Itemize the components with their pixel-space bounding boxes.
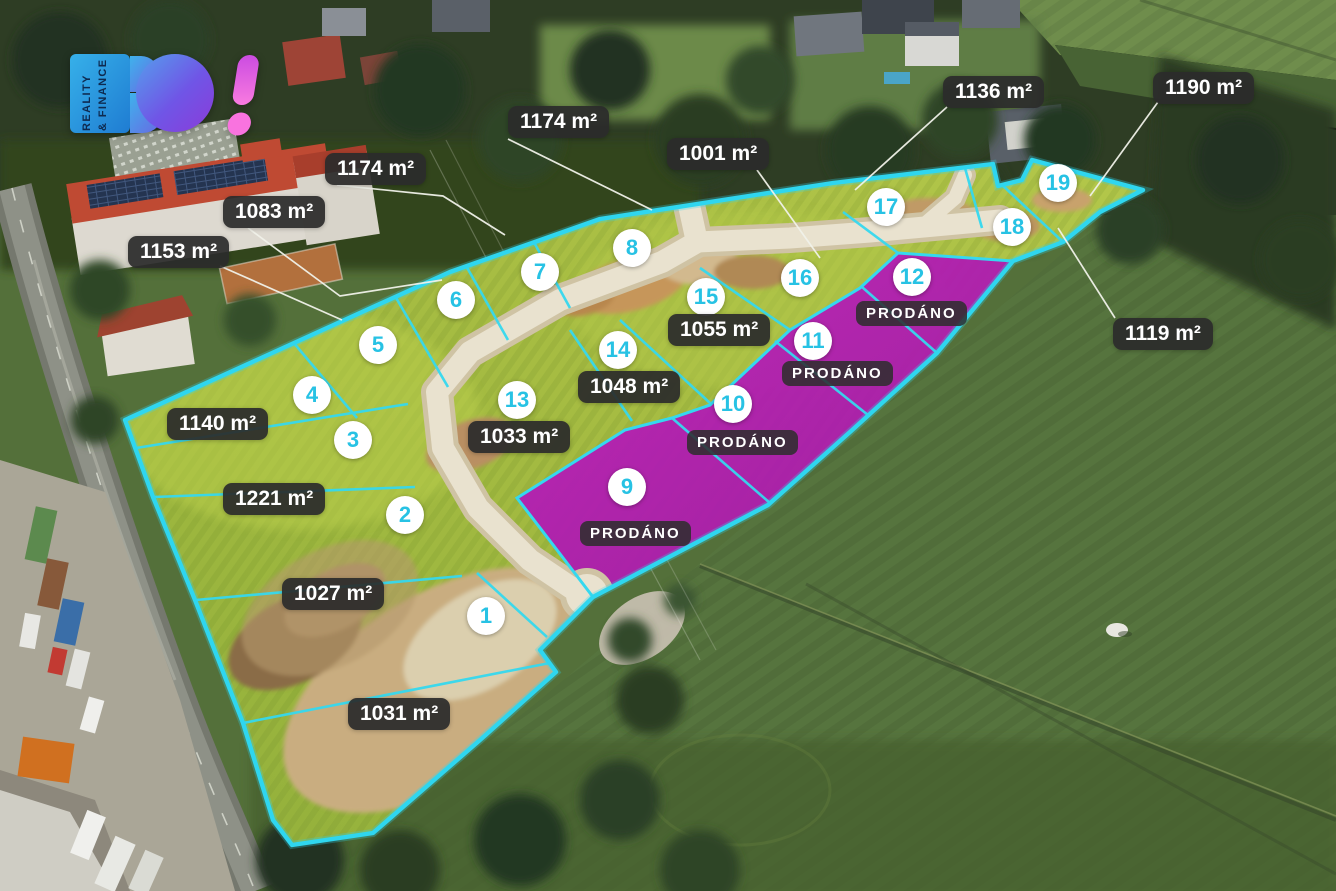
logo-tagline-line2: & FINANCE <box>97 59 109 132</box>
brand-logo: REALITY & FINANCE <box>68 50 272 136</box>
logo-o-letter <box>136 54 214 132</box>
logo-tagline-line1: REALITY <box>81 74 93 131</box>
logo-exclamation <box>226 55 262 136</box>
aerial-plot-map: 1 1031 m² 2 1027 m² 3 1221 m² 4 1140 m² … <box>0 0 1336 891</box>
